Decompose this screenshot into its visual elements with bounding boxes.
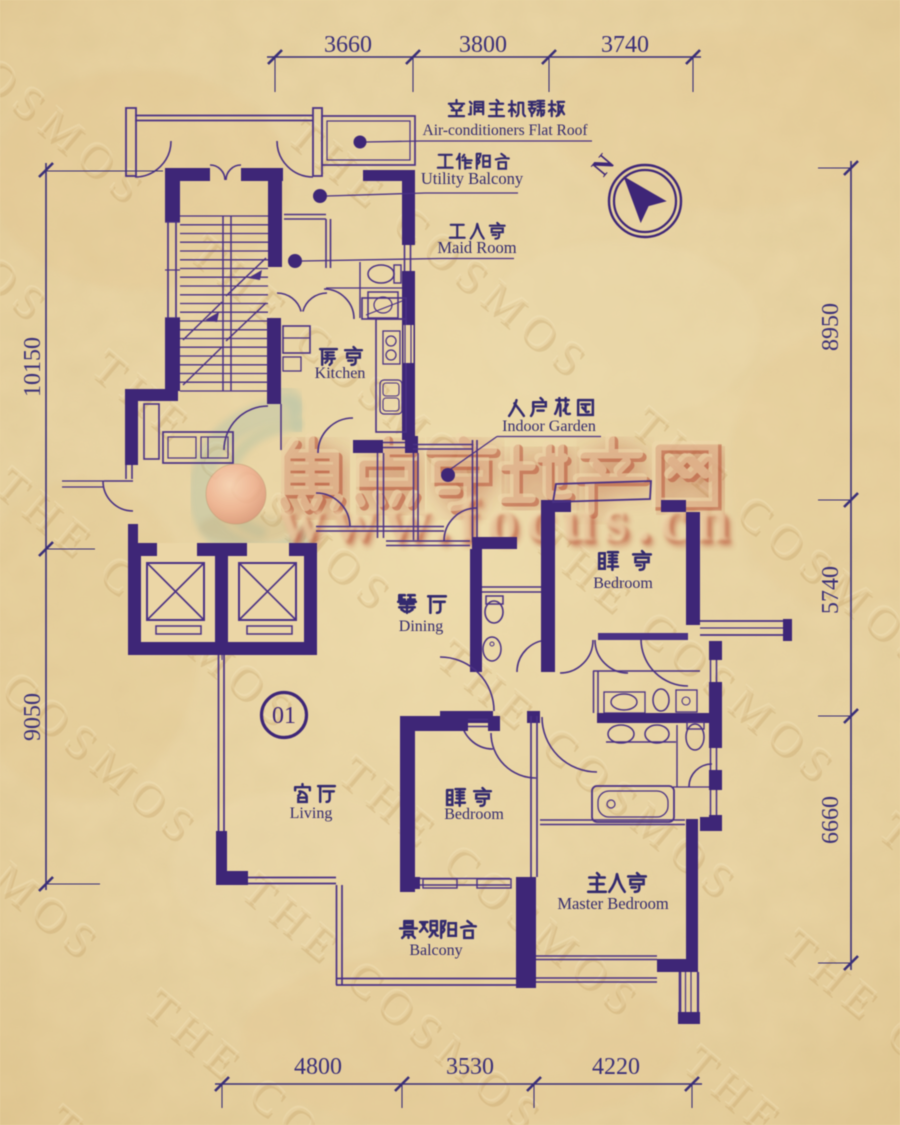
svg-text:4220: 4220 bbox=[592, 1054, 640, 1080]
svg-text:5740: 5740 bbox=[818, 566, 844, 614]
svg-text:Master Bedroom: Master Bedroom bbox=[557, 894, 669, 913]
svg-text:10150: 10150 bbox=[20, 337, 46, 397]
svg-text:Balcony: Balcony bbox=[409, 942, 462, 959]
svg-text:3800: 3800 bbox=[459, 32, 507, 58]
svg-text:9050: 9050 bbox=[20, 693, 46, 741]
svg-text:Living: Living bbox=[290, 805, 333, 822]
svg-text:3660: 3660 bbox=[324, 32, 372, 58]
svg-text:3530: 3530 bbox=[446, 1054, 494, 1080]
svg-text:Kitchen: Kitchen bbox=[315, 365, 366, 382]
svg-text:Utility Balcony: Utility Balcony bbox=[421, 169, 524, 188]
svg-text:6660: 6660 bbox=[818, 796, 844, 844]
svg-text:Bedroom: Bedroom bbox=[593, 575, 653, 592]
svg-text:Bedroom: Bedroom bbox=[444, 806, 504, 823]
svg-text:01: 01 bbox=[272, 703, 296, 729]
svg-text:Indoor Garden: Indoor Garden bbox=[502, 418, 596, 435]
svg-text:8950: 8950 bbox=[818, 303, 844, 351]
svg-text:Air-conditioners Flat Roof: Air-conditioners Flat Roof bbox=[423, 122, 589, 139]
svg-text:4800: 4800 bbox=[294, 1054, 342, 1080]
svg-text:Maid Room: Maid Room bbox=[437, 238, 516, 257]
svg-text:3740: 3740 bbox=[601, 32, 649, 58]
svg-text:Dining: Dining bbox=[399, 618, 443, 635]
